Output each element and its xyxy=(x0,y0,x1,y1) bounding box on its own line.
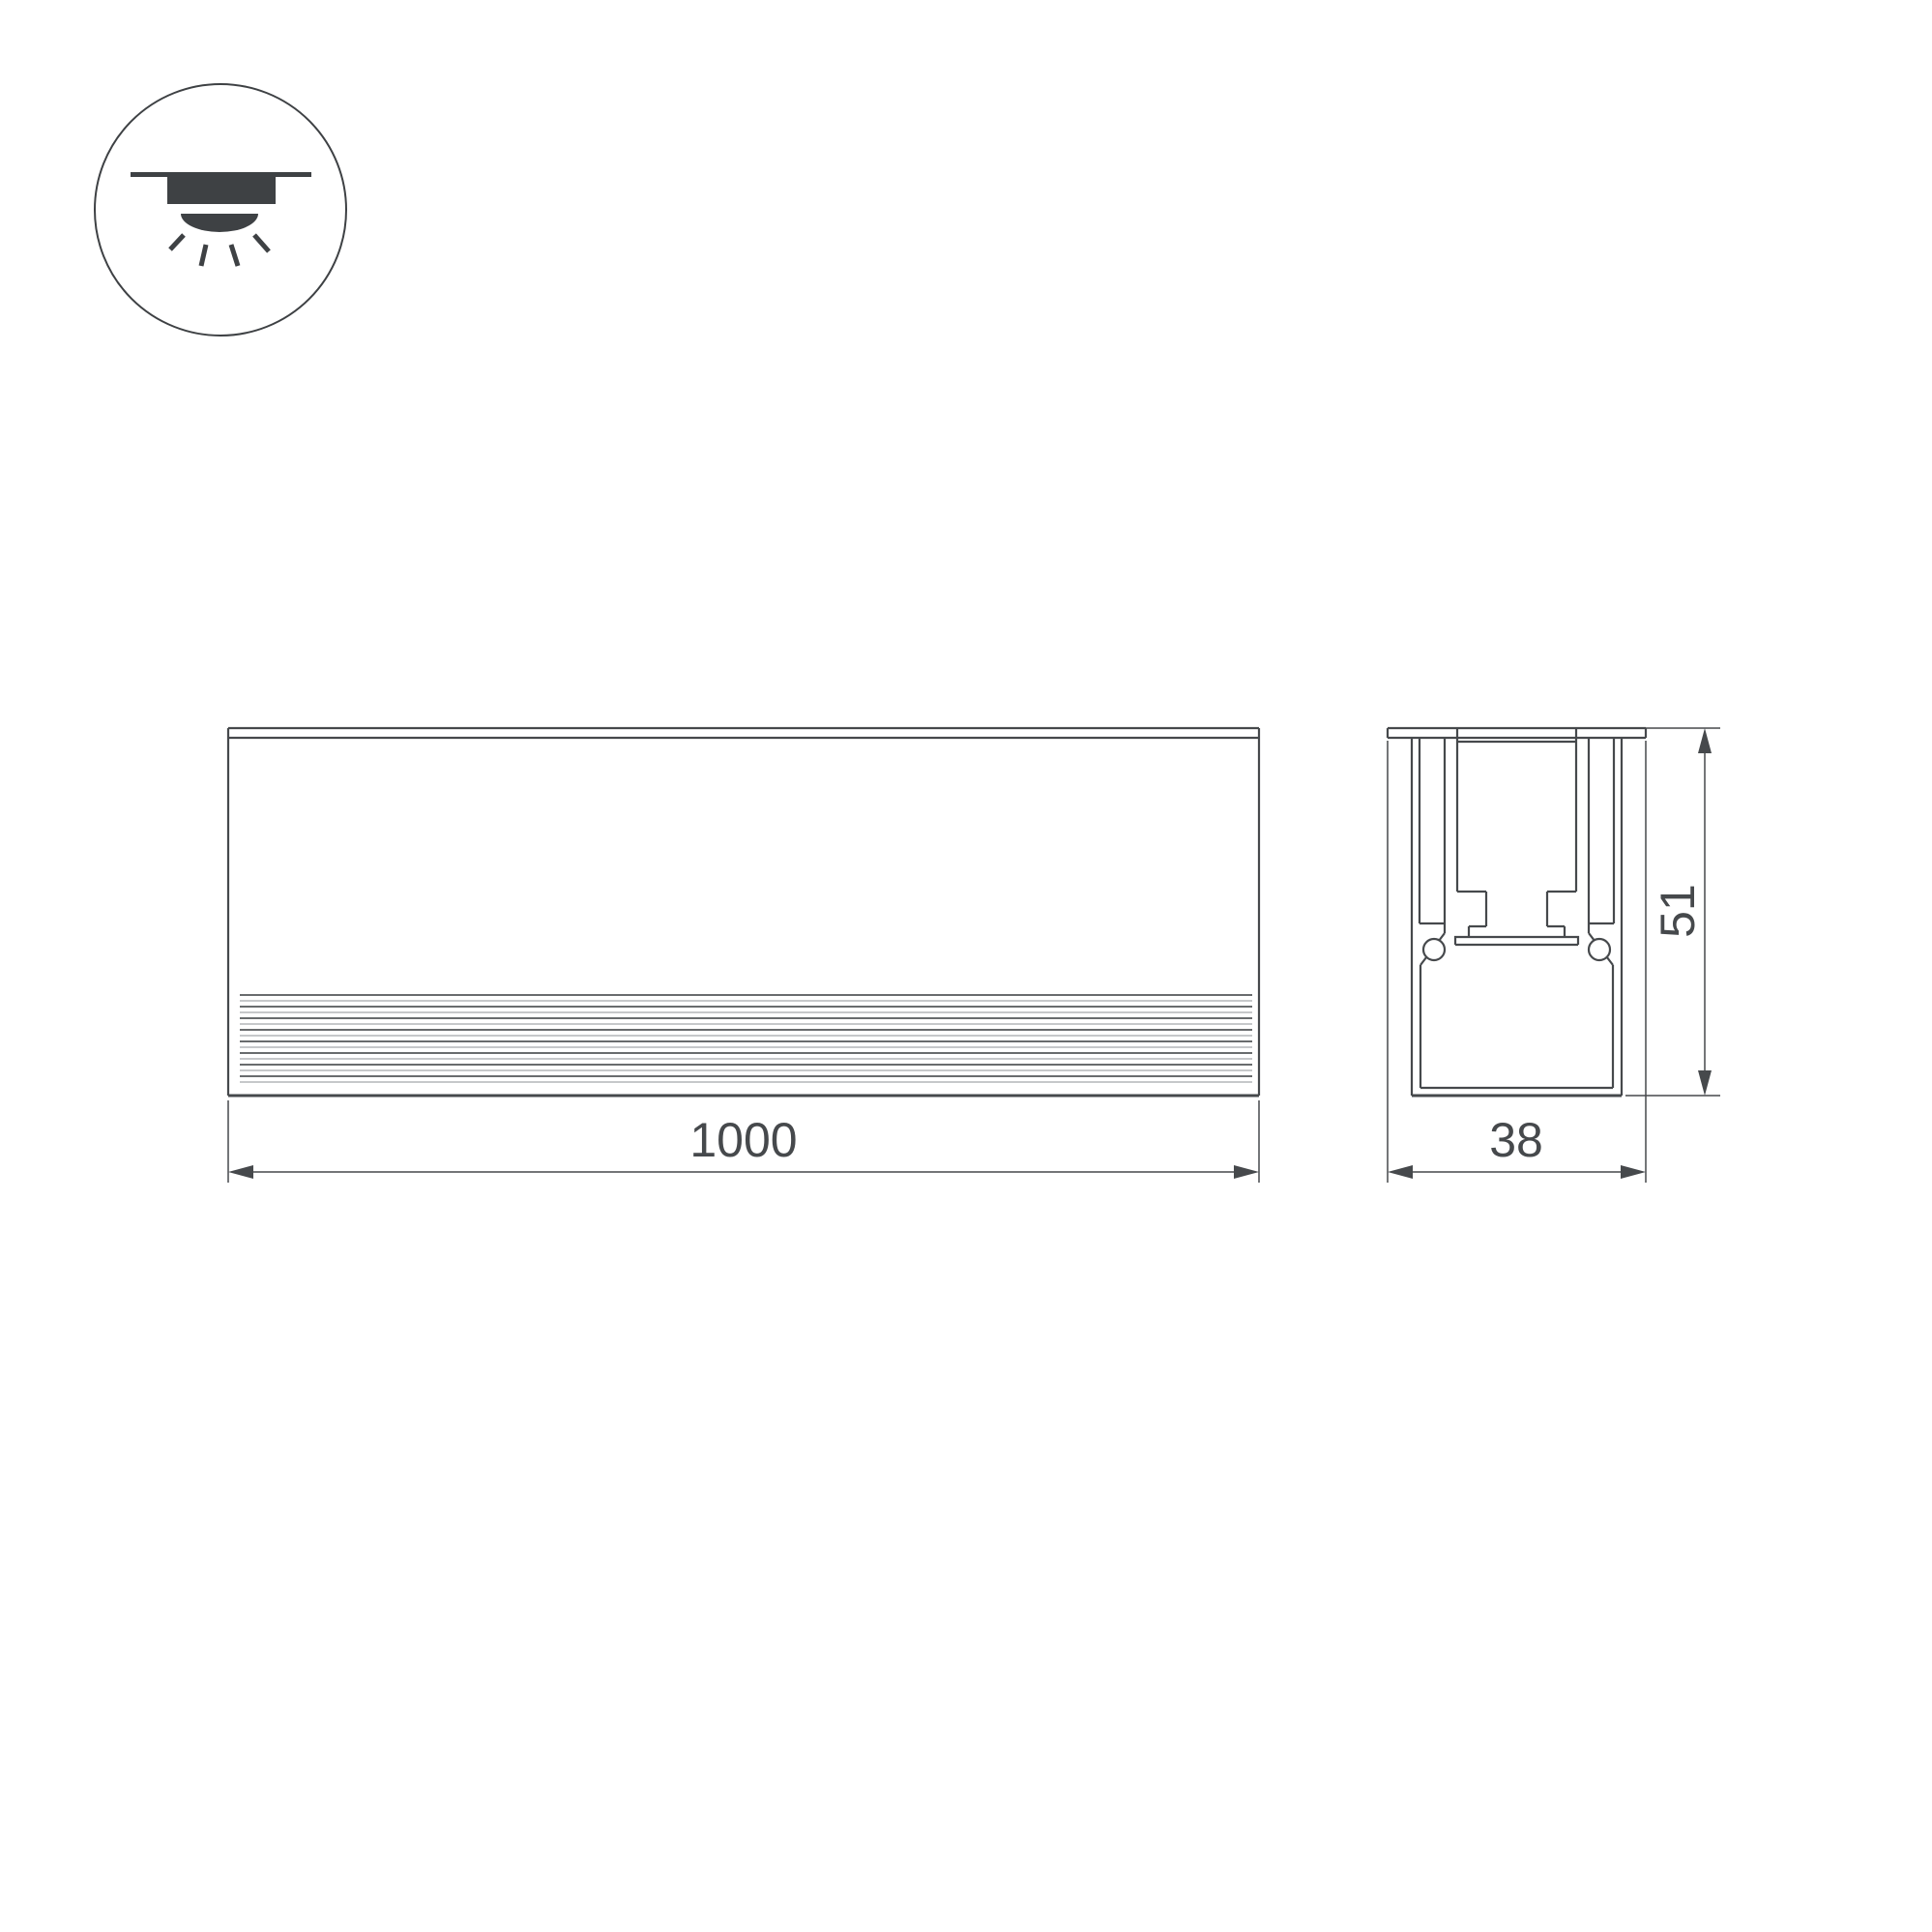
dimension-section-height: 51 xyxy=(1625,728,1720,1096)
front-width-value: 1000 xyxy=(689,1113,797,1167)
icon-circle-border xyxy=(95,84,346,336)
section-diffuser-cavity xyxy=(1420,965,1613,1088)
arrowhead-left xyxy=(228,1165,253,1179)
arrowhead-up xyxy=(1698,728,1712,753)
section-channel-neck xyxy=(1457,892,1576,937)
section-channel-ceiling xyxy=(1457,728,1576,742)
arrowhead-left xyxy=(1388,1165,1413,1179)
icon-light-rays xyxy=(170,235,269,266)
dimension-section-width: 38 xyxy=(1388,741,1646,1183)
drawing-canvas: 1000 38 xyxy=(0,0,1932,1932)
section-screw-notch-right xyxy=(1589,939,1610,960)
front-view-diffuser-stripes xyxy=(240,995,1252,1082)
section-outer-walls xyxy=(1412,738,1622,1096)
arrowhead-right xyxy=(1234,1165,1259,1179)
section-flange xyxy=(1388,728,1646,738)
recessed-downlight-icon xyxy=(95,84,346,336)
arrowhead-down xyxy=(1698,1070,1712,1096)
section-channel-walls xyxy=(1445,738,1589,923)
section-view xyxy=(1388,728,1646,1096)
arrowhead-right xyxy=(1621,1165,1646,1179)
section-height-value: 51 xyxy=(1651,884,1705,938)
dimension-front-width: 1000 xyxy=(228,1100,1259,1183)
front-view xyxy=(228,728,1259,1096)
section-wall-steps xyxy=(1420,923,1614,933)
icon-lamp-dome xyxy=(181,214,258,232)
section-screw-notch-left xyxy=(1423,939,1445,960)
section-led-plate xyxy=(1455,937,1578,945)
icon-recessed-housing xyxy=(167,176,276,204)
section-width-value: 38 xyxy=(1489,1113,1543,1167)
